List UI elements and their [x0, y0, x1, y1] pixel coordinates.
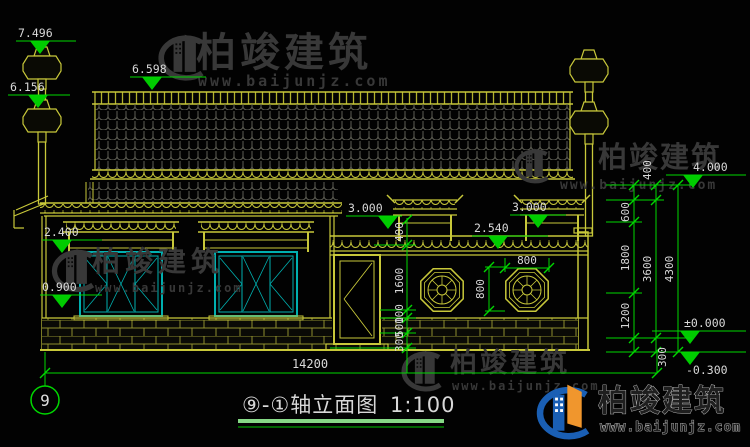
dim-mid-1600: 1600 — [393, 268, 406, 295]
brand-logo-colored: 柏竣建筑 www.baijunjz.com — [540, 384, 741, 436]
dim-octagon-width: 800 — [517, 254, 537, 267]
dim-mid-300: 300 — [393, 332, 406, 352]
watermark-site: www.baijunjz.com — [198, 72, 391, 90]
watermark-brand: 柏竣建筑 — [196, 30, 372, 76]
level-below-ground: -0.300 — [686, 363, 728, 377]
octagon-window-2 — [505, 268, 549, 312]
dim-right-1800: 1800 — [619, 245, 632, 272]
dim-right-600: 600 — [619, 202, 632, 222]
dim-right-400: 400 — [641, 160, 654, 180]
octagon-window-1 — [420, 268, 464, 312]
title-block: ⑨-①轴立面图 1:100 — [238, 393, 456, 427]
brand-logo-icon — [404, 351, 440, 389]
axis-bubble-label: 9 — [40, 391, 50, 410]
watermark-bottom: 柏竣建筑 www.baijunjz.com — [404, 347, 600, 393]
level-main-eave: 4.000 — [693, 160, 728, 174]
level-finial-top: 7.496 — [18, 26, 53, 40]
left-roof-finial — [23, 44, 61, 204]
level-gate-left: 3.000 — [348, 201, 383, 215]
dim-right-3600: 3600 — [641, 256, 654, 283]
dim-octagon-height: 800 — [474, 279, 487, 299]
dim-mid-400: 400 — [393, 222, 406, 242]
elevation-drawing: 柏竣建筑 www.baijunjz.com 柏竣建筑 www.baijunjz.… — [0, 0, 750, 447]
dim-right-1200: 1200 — [619, 303, 632, 330]
watermark-site: www.baijunjz.com — [95, 281, 243, 295]
level-window-canopy: 2.400 — [44, 225, 79, 239]
left-house-roof — [14, 182, 342, 228]
watermark-left: 柏竣建筑 www.baijunjz.com — [54, 245, 242, 295]
watermark-brand: 柏竣建筑 — [450, 347, 570, 379]
entrance-door — [326, 255, 388, 350]
level-ground: ±0.000 — [684, 316, 726, 330]
drawing-title: ⑨-①轴立面图 — [242, 393, 378, 417]
brand-name: 柏竣建筑 — [598, 384, 726, 419]
level-wall-coping: 2.540 — [474, 221, 509, 235]
level-ridge: 6.598 — [132, 62, 167, 76]
dim-total-width: 14200 — [292, 357, 328, 371]
dim-right-4300: 4300 — [663, 256, 676, 283]
level-left-ornament: 6.156 — [10, 80, 45, 94]
main-roof — [90, 92, 575, 179]
level-window-sill: 0.900 — [42, 280, 77, 294]
watermark-top: 柏竣建筑 www.baijunjz.com — [161, 30, 390, 90]
brand-site: www.baijunjz.com — [600, 420, 741, 435]
drawing-scale: 1:100 — [390, 393, 456, 417]
watermark-brand: 柏竣建筑 — [92, 245, 224, 278]
title-underline-thick — [238, 419, 444, 423]
cad-elevation-canvas: 柏竣建筑 www.baijunjz.com 柏竣建筑 www.baijunjz.… — [0, 0, 750, 447]
dim-right-300: 300 — [656, 347, 669, 367]
level-gate-right: 3.000 — [512, 200, 547, 214]
